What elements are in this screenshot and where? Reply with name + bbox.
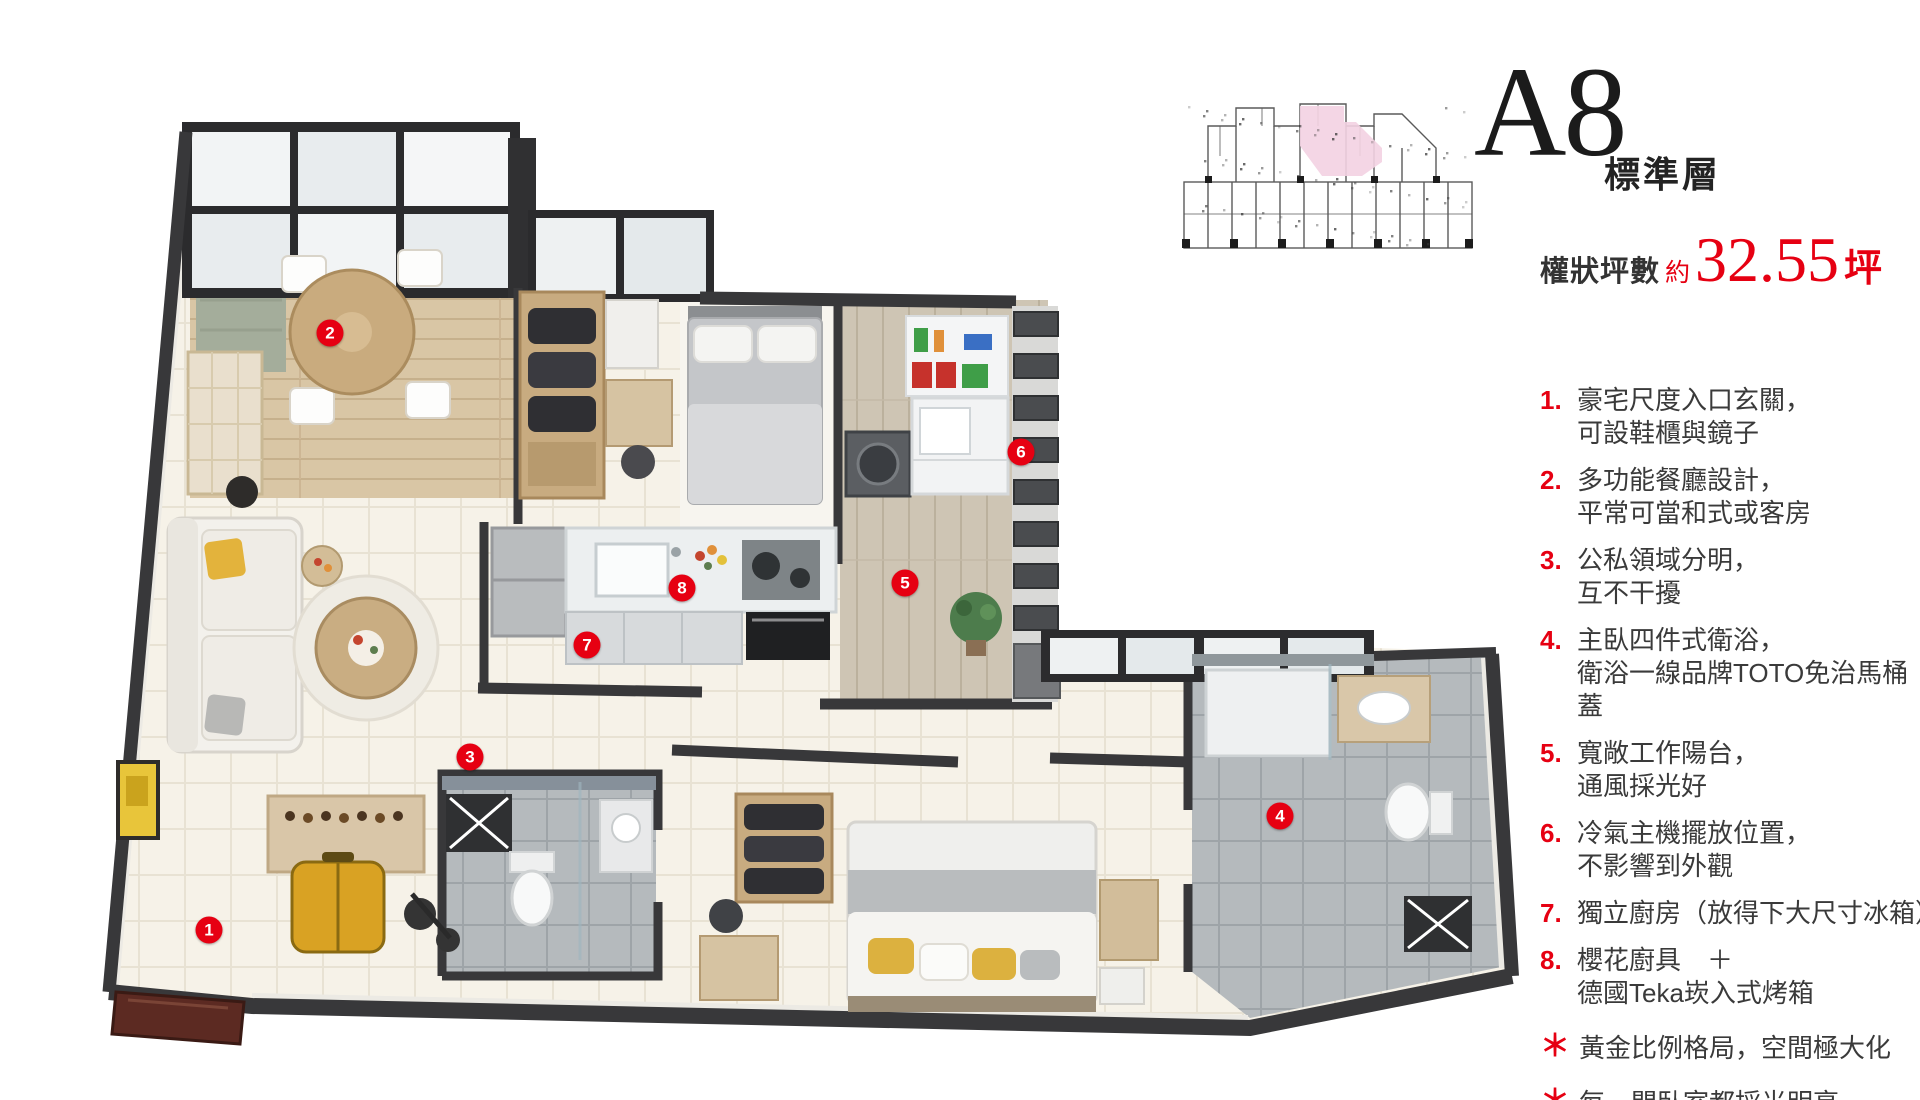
feature-number: 2. bbox=[1540, 464, 1568, 530]
feature-text: 櫻花廚具 ＋德國Teka崁入式烤箱 bbox=[1577, 944, 1814, 1010]
feature-item: 3. 公私領域分明，互不干擾 bbox=[1540, 544, 1920, 610]
living-sofa bbox=[168, 518, 302, 752]
kitchen-sink bbox=[596, 544, 668, 596]
area-label: 權狀坪數 bbox=[1540, 248, 1660, 290]
plan-marker-2: 2 bbox=[317, 320, 344, 347]
feature-item: 4. 主臥四件式衛浴，衛浴一線品牌TOTO免治馬桶蓋 bbox=[1540, 624, 1920, 723]
master-bedroom bbox=[700, 794, 1158, 1012]
feature-text: 黃金比例格局，空間極大化 bbox=[1579, 1032, 1891, 1065]
bench bbox=[1100, 880, 1158, 960]
feature-text: 寬敞工作陽台，通風採光好 bbox=[1577, 737, 1759, 803]
feature-number: 4. bbox=[1540, 624, 1568, 723]
feature-item: 1. 豪宅尺度入口玄關，可設鞋櫃與鏡子 bbox=[1540, 384, 1920, 450]
feature-text: 豪宅尺度入口玄關，可設鞋櫃與鏡子 bbox=[1577, 384, 1811, 450]
plan-marker-7: 7 bbox=[574, 632, 601, 659]
office-chair bbox=[709, 899, 743, 933]
area-line: 權狀坪數 約 32.55 坪 bbox=[1540, 228, 1882, 292]
area-value: 32.55 bbox=[1695, 228, 1839, 292]
potted-plant bbox=[950, 592, 1002, 644]
entry-door bbox=[112, 992, 244, 1044]
feature-item: 5. 寬敞工作陽台，通風採光好 bbox=[1540, 737, 1920, 803]
floor-type-label: 標準層 bbox=[1604, 146, 1721, 198]
floorplan-poster: A8 標準層 權狀坪數 約 32.55 坪 1. 豪宅尺度入口玄關，可設鞋櫃與鏡… bbox=[0, 0, 1920, 1100]
bedroom2-window bbox=[528, 210, 714, 302]
feature-number: 5. bbox=[1540, 737, 1568, 803]
feature-item: 7. 獨立廚房（放得下大尺寸冰箱） bbox=[1540, 897, 1920, 930]
desk bbox=[700, 936, 778, 1000]
unit-title: A8 bbox=[1474, 48, 1624, 176]
bedside-table bbox=[1100, 968, 1144, 1004]
plan-marker-4: 4 bbox=[1267, 803, 1294, 830]
feature-item: 6. 冷氣主機擺放位置，不影響到外觀 bbox=[1540, 817, 1920, 883]
yellow-artwork bbox=[118, 762, 158, 838]
fridge bbox=[492, 528, 566, 636]
feature-text: 主臥四件式衛浴，衛浴一線品牌TOTO免治馬桶蓋 bbox=[1577, 624, 1920, 723]
feature-text: 獨立廚房（放得下大尺寸冰箱） bbox=[1577, 897, 1920, 930]
plan-marker-5: 5 bbox=[892, 570, 919, 597]
plan-marker-6: 6 bbox=[1008, 439, 1035, 466]
feature-number: ＊ bbox=[1540, 1032, 1570, 1065]
feature-item: 2. 多功能餐廳設計，平常可當和式或客房 bbox=[1540, 464, 1920, 530]
shoji-screen bbox=[188, 352, 262, 494]
side-table bbox=[302, 546, 342, 586]
feature-item: ＊ 每一間臥室都採光明亮 bbox=[1540, 1087, 1920, 1100]
feature-number: 8. bbox=[1540, 944, 1568, 1010]
floor-lamp bbox=[226, 476, 258, 508]
area-unit: 坪 bbox=[1844, 237, 1882, 292]
shower-tray bbox=[1206, 670, 1330, 756]
area-approx: 約 bbox=[1665, 253, 1690, 289]
feature-item: ＊ 黃金比例格局，空間極大化 bbox=[1540, 1032, 1920, 1065]
key-plan bbox=[1178, 86, 1478, 261]
open-wardrobe bbox=[520, 292, 604, 498]
feature-text: 公私領域分明，互不干擾 bbox=[1577, 544, 1759, 610]
plan-marker-1: 1 bbox=[196, 917, 223, 944]
plan-marker-8: 8 bbox=[669, 575, 696, 602]
plan-marker-3: 3 bbox=[457, 744, 484, 771]
feature-item: 8. 櫻花廚具 ＋德國Teka崁入式烤箱 bbox=[1540, 944, 1920, 1010]
feature-number: ＊ bbox=[1540, 1087, 1570, 1100]
feature-text: 冷氣主機擺放位置，不影響到外觀 bbox=[1577, 817, 1811, 883]
toilet bbox=[512, 871, 552, 925]
toilet bbox=[1386, 784, 1430, 840]
feature-text: 多功能餐廳設計，平常可當和式或客房 bbox=[1577, 464, 1811, 530]
feature-text: 每一間臥室都採光明亮 bbox=[1579, 1087, 1839, 1100]
feature-number: 1. bbox=[1540, 384, 1568, 450]
feature-list: 1. 豪宅尺度入口玄關，可設鞋櫃與鏡子 2. 多功能餐廳設計，平常可當和式或客房… bbox=[1540, 384, 1920, 1100]
suitcase bbox=[292, 852, 384, 952]
shelf-unit bbox=[606, 300, 658, 368]
feature-number: 3. bbox=[1540, 544, 1568, 610]
unit-highlight bbox=[1300, 106, 1382, 176]
feature-number: 6. bbox=[1540, 817, 1568, 883]
bedroom2-bed bbox=[688, 306, 822, 504]
coffee-table bbox=[316, 598, 416, 698]
feature-number: 7. bbox=[1540, 897, 1568, 930]
